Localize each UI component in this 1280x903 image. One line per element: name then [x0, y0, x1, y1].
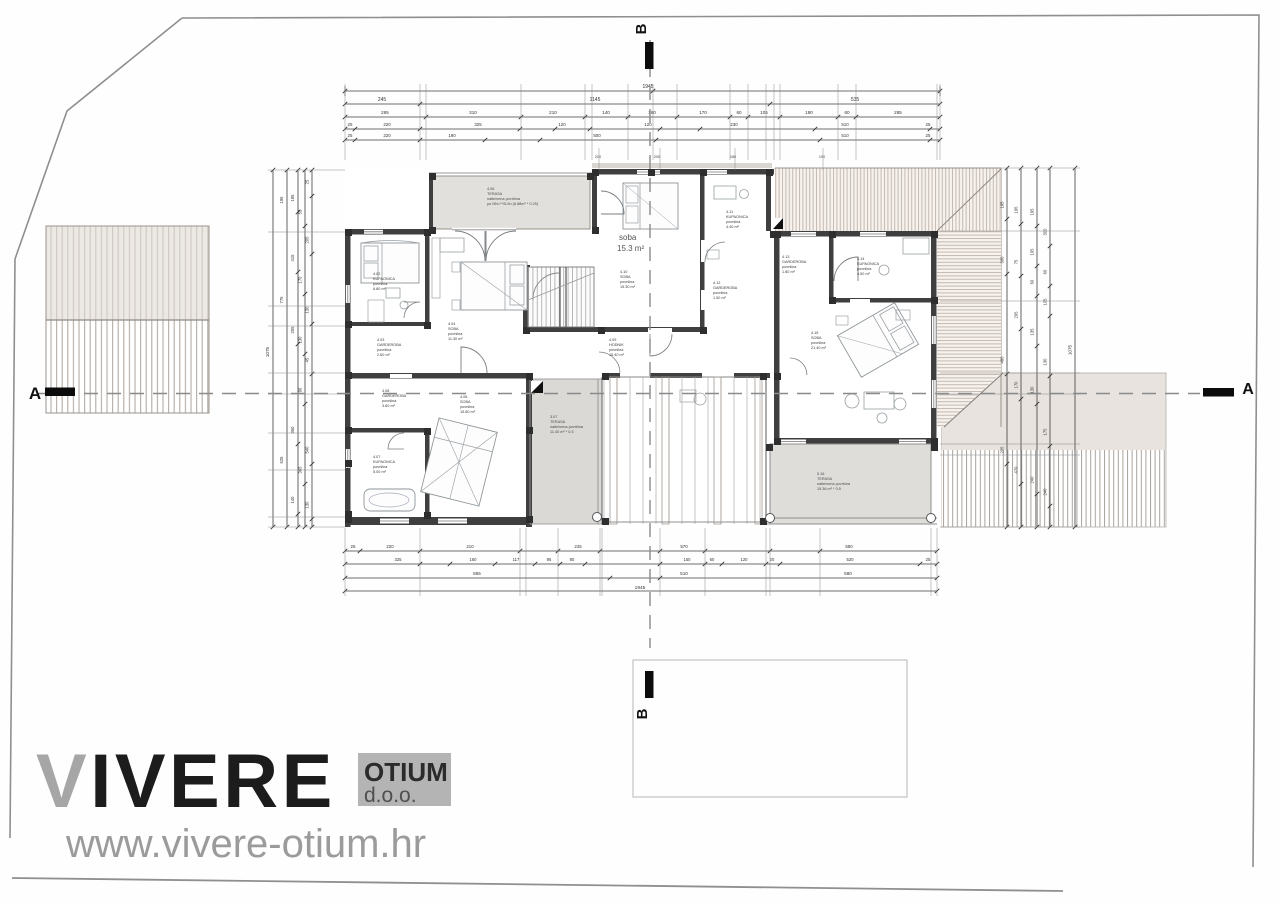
svg-text:75: 75 [1014, 259, 1019, 264]
svg-text:220: 220 [383, 122, 391, 127]
svg-text:130: 130 [1043, 358, 1048, 366]
svg-text:195: 195 [279, 196, 284, 204]
svg-text:300: 300 [1043, 228, 1048, 236]
svg-text:površina: površina [377, 348, 392, 352]
svg-text:površina: površina [373, 465, 388, 469]
svg-text:130: 130 [305, 501, 310, 509]
svg-text:350: 350 [290, 426, 295, 434]
svg-text:20: 20 [770, 557, 775, 562]
svg-text:130: 130 [305, 306, 310, 314]
svg-text:TERASA: TERASA [550, 420, 566, 424]
svg-text:25: 25 [351, 544, 356, 549]
svg-text:natkrivena površina: natkrivena površina [817, 482, 851, 486]
svg-text:natkrivena površina: natkrivena površina [487, 197, 521, 201]
svg-text:175: 175 [1043, 428, 1048, 436]
svg-text:HODNIK: HODNIK [609, 343, 624, 347]
svg-text:195: 195 [1030, 208, 1035, 216]
svg-text:140: 140 [290, 496, 295, 504]
svg-text:105: 105 [760, 110, 768, 115]
svg-text:2.60 m²: 2.60 m² [377, 353, 391, 357]
svg-text:140: 140 [602, 110, 610, 115]
svg-text:TERASA: TERASA [817, 477, 833, 481]
svg-text:775: 775 [279, 296, 284, 304]
svg-text:4.03: 4.03 [377, 338, 384, 342]
svg-text:200: 200 [595, 155, 601, 159]
svg-text:GARDEROBA: GARDEROBA [382, 394, 407, 398]
svg-text:25: 25 [348, 133, 353, 138]
svg-text:6.80 m²: 6.80 m² [373, 287, 387, 291]
svg-text:220: 220 [383, 133, 391, 138]
svg-text:SOBA: SOBA [620, 275, 631, 279]
svg-text:15.30 m²: 15.30 m² [620, 285, 636, 289]
svg-text:površina: površina [620, 280, 635, 284]
svg-text:25: 25 [348, 122, 353, 127]
svg-text:325: 325 [395, 557, 403, 562]
svg-text:60: 60 [1030, 279, 1035, 284]
svg-text:510: 510 [680, 571, 688, 576]
svg-text:po NN=**/5-5n (6.88m² * 0.25): po NN=**/5-5n (6.88m² * 0.25) [487, 202, 539, 206]
svg-text:1075: 1075 [265, 346, 270, 357]
svg-text:TERASA: TERASA [487, 192, 503, 196]
svg-text:60: 60 [710, 557, 715, 562]
svg-text:525: 525 [279, 456, 284, 464]
svg-text:4.13: 4.13 [782, 255, 789, 259]
svg-text:160: 160 [470, 557, 478, 562]
svg-text:205: 205 [1014, 311, 1019, 319]
svg-text:480: 480 [1000, 356, 1005, 364]
svg-text:220: 220 [386, 544, 394, 549]
svg-text:KUPAONICA: KUPAONICA [373, 277, 396, 281]
svg-text:11.30 m²: 11.30 m² [448, 337, 463, 341]
svg-text:površina: površina [448, 332, 463, 336]
svg-text:4.40 m²: 4.40 m² [726, 225, 740, 229]
svg-text:45: 45 [305, 357, 310, 362]
svg-text:60: 60 [736, 110, 742, 115]
svg-text:površina: površina [726, 220, 741, 224]
svg-text:15.36 m² * 0.5: 15.36 m² * 0.5 [817, 487, 841, 491]
svg-text:105: 105 [1043, 298, 1048, 306]
svg-text:25: 25 [305, 179, 310, 184]
svg-text:470: 470 [1014, 466, 1019, 474]
svg-text:površina: površina [609, 348, 624, 352]
svg-text:KUPAONICA: KUPAONICA [726, 215, 749, 219]
svg-text:površina: površina [811, 341, 826, 345]
svg-text:90: 90 [298, 387, 303, 392]
svg-text:A: A [29, 384, 41, 403]
svg-text:4.50 m²: 4.50 m² [857, 272, 871, 276]
svg-text:325: 325 [474, 122, 482, 127]
svg-text:25: 25 [926, 133, 931, 138]
svg-text:25: 25 [926, 557, 931, 562]
svg-text:120: 120 [558, 122, 566, 127]
svg-text:1.50 m²: 1.50 m² [713, 296, 727, 300]
svg-text:4.04: 4.04 [448, 322, 455, 326]
svg-text:površina: površina [382, 399, 397, 403]
svg-text:KUPAONICA: KUPAONICA [857, 262, 880, 266]
svg-text:117: 117 [513, 557, 520, 562]
svg-text:230: 230 [730, 122, 738, 127]
svg-text:95: 95 [547, 557, 552, 562]
svg-text:soba: soba [619, 233, 637, 242]
svg-text:265: 265 [381, 110, 389, 115]
svg-text:510: 510 [841, 122, 849, 127]
svg-text:195: 195 [1014, 206, 1019, 214]
svg-text:3.07: 3.07 [550, 415, 557, 419]
svg-text:135: 135 [1030, 328, 1035, 336]
svg-text:570: 570 [680, 544, 688, 549]
svg-text:190: 190 [819, 155, 825, 159]
svg-text:4.06: 4.06 [487, 187, 494, 191]
svg-text:OTIUM: OTIUM [364, 757, 448, 787]
svg-text:A: A [1242, 381, 1254, 398]
svg-text:300: 300 [1000, 256, 1005, 264]
svg-text:210: 210 [549, 110, 557, 115]
svg-text:površina: površina [857, 267, 872, 271]
svg-text:580: 580 [844, 571, 852, 576]
svg-text:55: 55 [298, 209, 303, 214]
svg-text:15.80 m²: 15.80 m² [460, 410, 476, 414]
svg-text:VIVERE: VIVERE [36, 739, 336, 824]
svg-text:SOBA: SOBA [448, 327, 459, 331]
svg-text:245: 245 [378, 97, 387, 103]
svg-text:415: 415 [290, 254, 295, 262]
svg-text:130: 130 [1030, 386, 1035, 394]
svg-text:130: 130 [298, 336, 303, 344]
svg-text:4.06: 4.06 [460, 395, 467, 399]
svg-text:1945: 1945 [642, 84, 653, 90]
svg-text:15.3 m²: 15.3 m² [617, 244, 644, 253]
svg-text:SOBA: SOBA [811, 336, 822, 340]
svg-text:520: 520 [847, 557, 855, 562]
svg-text:120: 120 [741, 557, 749, 562]
svg-text:površina: površina [460, 405, 475, 409]
svg-text:205: 205 [290, 326, 295, 334]
svg-text:150: 150 [684, 557, 692, 562]
svg-text:60: 60 [844, 110, 850, 115]
svg-text:4.15: 4.15 [811, 331, 818, 335]
svg-text:1145: 1145 [590, 97, 601, 103]
svg-text:4.10: 4.10 [620, 270, 627, 274]
svg-text:4.14: 4.14 [857, 257, 864, 261]
svg-text:GARDEROBA: GARDEROBA [782, 260, 807, 264]
svg-text:120: 120 [644, 122, 652, 127]
svg-text:4.09: 4.09 [609, 338, 616, 342]
svg-text:205: 205 [1000, 446, 1005, 454]
svg-text:105: 105 [1030, 248, 1035, 256]
svg-text:5.16: 5.16 [817, 472, 824, 476]
svg-text:535: 535 [851, 97, 860, 103]
svg-text:245: 245 [574, 544, 582, 549]
svg-text:1075: 1075 [1068, 344, 1073, 355]
svg-text:površina: površina [373, 282, 388, 286]
svg-text:170: 170 [298, 276, 303, 284]
svg-text:11.40 m² * 0.5: 11.40 m² * 0.5 [550, 430, 574, 434]
svg-text:3.60 m²: 3.60 m² [382, 404, 396, 408]
svg-text:25: 25 [926, 122, 931, 127]
svg-text:205: 205 [305, 236, 310, 244]
svg-text:1.80 m²: 1.80 m² [782, 270, 796, 274]
svg-text:190: 190 [805, 110, 813, 115]
svg-text:1945: 1945 [635, 585, 646, 591]
svg-text:365: 365 [298, 466, 303, 474]
svg-text:4.12: 4.12 [713, 281, 720, 285]
svg-text:310: 310 [469, 110, 477, 115]
svg-text:SOBA: SOBA [460, 400, 471, 404]
svg-text:540: 540 [305, 446, 310, 454]
svg-text:500: 500 [593, 133, 601, 138]
svg-text:GARDEROBA: GARDEROBA [713, 286, 738, 290]
svg-text:4.07: 4.07 [373, 455, 380, 459]
svg-text:d.o.o.: d.o.o. [364, 784, 417, 807]
svg-text:60: 60 [1043, 269, 1048, 274]
svg-text:195: 195 [290, 194, 295, 202]
svg-text:B: B [634, 708, 651, 719]
svg-text:B: B [633, 23, 650, 34]
svg-text:170: 170 [699, 110, 707, 115]
svg-text:240: 240 [1043, 488, 1048, 496]
svg-text:5.00 m²: 5.00 m² [373, 470, 387, 474]
svg-text:80: 80 [570, 557, 575, 562]
svg-text:površina: površina [713, 291, 728, 295]
svg-text:190: 190 [448, 133, 456, 138]
svg-text:natkrivena površina: natkrivena površina [550, 425, 584, 429]
svg-text:195: 195 [1000, 201, 1005, 209]
svg-text:285: 285 [894, 110, 902, 115]
svg-text:15.40 m²: 15.40 m² [609, 353, 625, 357]
svg-text:4.08: 4.08 [382, 389, 389, 393]
svg-text:4.02: 4.02 [373, 272, 380, 276]
svg-text:205: 205 [654, 155, 660, 159]
svg-text:855: 855 [473, 571, 481, 576]
svg-text:površina: površina [782, 265, 797, 269]
svg-text:4.11: 4.11 [726, 210, 733, 214]
svg-text:21.40 m²: 21.40 m² [811, 346, 827, 350]
svg-text:170: 170 [1014, 381, 1019, 389]
svg-text:240: 240 [1030, 476, 1035, 484]
svg-text:580: 580 [845, 544, 853, 549]
svg-text:GARDEROBA: GARDEROBA [377, 343, 402, 347]
svg-text:www.vivere-otium.hr: www.vivere-otium.hr [65, 822, 426, 866]
svg-text:KUPAONICA: KUPAONICA [373, 460, 396, 464]
svg-text:510: 510 [841, 133, 849, 138]
svg-text:210: 210 [466, 544, 474, 549]
